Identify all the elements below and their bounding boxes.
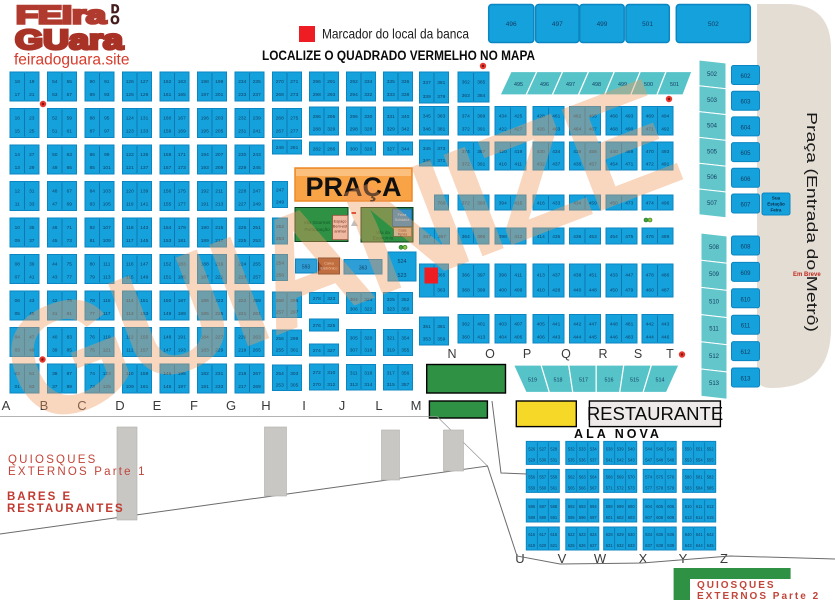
svg-text:EXTERNOS Parte 1: EXTERNOS Parte 1: [8, 466, 147, 478]
svg-text:381: 381: [437, 80, 445, 86]
svg-text:46: 46: [52, 225, 58, 231]
svg-text:L: L: [375, 398, 382, 413]
svg-text:543: 543: [628, 457, 636, 462]
svg-text:519: 519: [528, 378, 537, 384]
svg-text:203: 203: [215, 116, 223, 122]
svg-text:448: 448: [589, 287, 597, 293]
svg-text:351: 351: [423, 324, 431, 330]
svg-text:125: 125: [126, 92, 134, 98]
svg-text:407: 407: [514, 322, 522, 328]
svg-text:460: 460: [646, 287, 654, 293]
svg-text:53: 53: [52, 92, 58, 98]
svg-text:17: 17: [15, 92, 21, 98]
svg-text:505: 505: [707, 149, 718, 155]
svg-text:296: 296: [313, 79, 321, 85]
svg-text:569: 569: [617, 474, 625, 479]
svg-text:579: 579: [667, 485, 675, 490]
svg-text:608: 608: [656, 515, 664, 520]
svg-text:537: 537: [590, 457, 598, 462]
svg-text:641: 641: [696, 532, 704, 537]
svg-text:629: 629: [617, 532, 625, 537]
svg-text:495: 495: [514, 82, 523, 88]
svg-text:91: 91: [104, 79, 110, 85]
svg-text:494: 494: [661, 114, 669, 120]
svg-text:158: 158: [163, 152, 171, 158]
svg-text:612: 612: [740, 350, 751, 356]
svg-text:31: 31: [29, 189, 35, 195]
svg-text:Estação: Estação: [767, 202, 785, 207]
svg-text:573: 573: [628, 485, 636, 490]
svg-text:318: 318: [364, 347, 372, 353]
svg-text:48: 48: [52, 189, 58, 195]
svg-text:478: 478: [646, 273, 654, 279]
svg-text:487: 487: [661, 287, 669, 293]
svg-text:243: 243: [253, 152, 261, 158]
svg-text:450: 450: [610, 287, 618, 293]
svg-text:291: 291: [327, 79, 335, 85]
svg-text:592: 592: [568, 504, 576, 509]
svg-text:207: 207: [215, 152, 223, 158]
svg-text:585: 585: [707, 485, 715, 490]
svg-text:RESTAURANTE: RESTAURANTE: [587, 403, 723, 424]
svg-text:535: 535: [568, 457, 576, 462]
svg-text:622: 622: [568, 532, 576, 537]
svg-text:199: 199: [215, 79, 223, 85]
svg-text:437: 437: [552, 273, 560, 279]
svg-text:07: 07: [15, 275, 21, 281]
svg-text:328: 328: [364, 126, 372, 132]
svg-text:QUIOSQUES: QUIOSQUES: [697, 580, 776, 591]
svg-text:612: 612: [707, 504, 715, 509]
svg-text:254: 254: [276, 371, 284, 377]
svg-text:55: 55: [67, 79, 73, 85]
svg-text:131: 131: [140, 116, 148, 122]
svg-text:198: 198: [201, 79, 209, 85]
svg-text:Praça (Entrada do Metrô): Praça (Entrada do Metrô): [803, 112, 820, 332]
svg-text:644: 644: [696, 543, 704, 548]
svg-text:635: 635: [656, 532, 664, 537]
svg-text:171: 171: [178, 152, 186, 158]
svg-text:33: 33: [29, 202, 35, 208]
svg-text:600: 600: [628, 504, 636, 509]
svg-text:317: 317: [387, 371, 395, 377]
svg-text:296: 296: [350, 114, 358, 120]
svg-text:45: 45: [52, 238, 58, 244]
svg-text:59: 59: [67, 116, 73, 122]
svg-text:R: R: [598, 347, 607, 361]
svg-text:599: 599: [617, 504, 625, 509]
svg-text:25: 25: [29, 129, 35, 135]
svg-text:193: 193: [201, 165, 209, 171]
svg-text:90: 90: [90, 79, 96, 85]
svg-text:307: 307: [350, 347, 358, 353]
svg-text:Feira: Feira: [771, 208, 782, 213]
svg-text:551: 551: [696, 446, 704, 451]
svg-text:609: 609: [740, 271, 751, 277]
svg-text:562: 562: [568, 474, 576, 479]
svg-text:321: 321: [387, 336, 395, 342]
svg-text:518: 518: [554, 378, 563, 384]
svg-text:167: 167: [178, 116, 186, 122]
svg-text:205: 205: [215, 129, 223, 135]
svg-text:155: 155: [163, 202, 171, 208]
svg-text:267: 267: [276, 129, 284, 135]
svg-text:52: 52: [52, 116, 58, 122]
svg-text:486: 486: [661, 273, 669, 279]
svg-text:10: 10: [15, 225, 21, 231]
svg-text:303: 303: [290, 371, 298, 377]
svg-text:feiradoguara.site: feiradoguara.site: [14, 52, 129, 69]
svg-text:J: J: [339, 398, 346, 413]
svg-text:619: 619: [528, 543, 536, 548]
svg-text:27: 27: [29, 152, 35, 158]
svg-text:143: 143: [140, 225, 148, 231]
svg-text:U: U: [515, 551, 524, 566]
svg-text:360: 360: [462, 334, 470, 340]
svg-text:403: 403: [499, 322, 507, 328]
svg-text:580: 580: [685, 474, 693, 479]
svg-text:513: 513: [709, 381, 720, 387]
svg-text:511: 511: [709, 327, 719, 333]
svg-text:481: 481: [625, 322, 633, 328]
svg-text:615: 615: [707, 515, 715, 520]
svg-text:527: 527: [539, 446, 547, 451]
svg-text:594: 594: [590, 504, 598, 509]
svg-text:Q: Q: [561, 347, 571, 361]
svg-text:312: 312: [327, 382, 335, 388]
svg-text:601: 601: [606, 515, 614, 520]
svg-text:638: 638: [656, 543, 664, 548]
svg-text:161: 161: [163, 92, 171, 98]
svg-text:97: 97: [104, 129, 110, 135]
svg-text:314: 314: [364, 382, 372, 388]
svg-text:355: 355: [401, 347, 409, 353]
svg-text:605: 605: [656, 504, 664, 509]
svg-text:337: 337: [423, 80, 431, 86]
svg-text:606: 606: [740, 177, 751, 183]
svg-text:604: 604: [740, 125, 751, 131]
svg-text:14: 14: [15, 152, 21, 158]
svg-text:605: 605: [740, 151, 751, 157]
svg-text:273: 273: [290, 92, 298, 98]
svg-text:87: 87: [90, 129, 96, 135]
svg-text:129: 129: [140, 92, 148, 98]
svg-text:313: 313: [350, 382, 358, 388]
svg-text:103: 103: [103, 189, 111, 195]
svg-text:293: 293: [327, 92, 335, 98]
svg-text:195: 195: [201, 129, 209, 135]
svg-text:501: 501: [670, 82, 679, 88]
svg-text:09: 09: [15, 238, 21, 244]
svg-text:316: 316: [364, 371, 372, 377]
svg-text:305: 305: [290, 383, 298, 389]
svg-text:640: 640: [685, 532, 693, 537]
svg-text:29: 29: [29, 165, 35, 171]
svg-text:550: 550: [685, 446, 693, 451]
svg-text:384: 384: [477, 93, 485, 99]
svg-text:234: 234: [238, 79, 246, 85]
svg-text:496: 496: [506, 21, 517, 28]
svg-text:627: 627: [590, 543, 598, 548]
svg-text:582: 582: [707, 474, 715, 479]
svg-text:88: 88: [90, 116, 96, 122]
svg-text:576: 576: [667, 474, 675, 479]
svg-text:354: 354: [401, 336, 409, 342]
svg-text:139: 139: [140, 189, 148, 195]
svg-text:514: 514: [656, 378, 665, 384]
svg-text:353: 353: [423, 336, 431, 342]
svg-text:294: 294: [350, 92, 358, 98]
svg-text:270: 270: [276, 79, 284, 85]
svg-text:607: 607: [645, 515, 653, 520]
svg-text:544: 544: [645, 446, 653, 451]
svg-text:483: 483: [625, 334, 633, 340]
svg-text:509: 509: [709, 272, 720, 278]
svg-text:137: 137: [140, 165, 148, 171]
svg-text:510: 510: [709, 299, 720, 305]
svg-text:512: 512: [709, 354, 720, 360]
svg-text:613: 613: [740, 377, 751, 383]
svg-text:121: 121: [126, 165, 134, 171]
svg-text:581: 581: [696, 474, 704, 479]
svg-text:271: 271: [290, 79, 298, 85]
svg-text:63: 63: [67, 152, 73, 158]
svg-text:620: 620: [539, 543, 547, 548]
svg-text:233: 233: [238, 92, 246, 98]
svg-text:89: 89: [90, 92, 96, 98]
svg-text:G: G: [226, 398, 236, 413]
svg-text:433: 433: [610, 273, 618, 279]
svg-text:597: 597: [590, 515, 598, 520]
svg-text:563: 563: [579, 474, 587, 479]
svg-text:269: 269: [276, 92, 284, 98]
svg-text:339: 339: [423, 94, 431, 100]
svg-text:356: 356: [401, 371, 409, 377]
svg-text:35: 35: [29, 225, 35, 231]
svg-text:277: 277: [290, 129, 298, 135]
svg-text:71: 71: [67, 225, 73, 231]
svg-text:607: 607: [740, 203, 751, 209]
svg-text:Em Breve: Em Breve: [793, 272, 821, 278]
svg-text:159: 159: [163, 129, 171, 135]
svg-text:588: 588: [550, 504, 558, 509]
svg-text:628: 628: [606, 532, 614, 537]
svg-text:334: 334: [364, 79, 372, 85]
svg-text:127: 127: [140, 79, 148, 85]
svg-text:508: 508: [709, 245, 720, 251]
svg-text:553: 553: [685, 457, 693, 462]
svg-text:310: 310: [327, 370, 335, 376]
svg-text:401: 401: [477, 322, 485, 328]
svg-text:405: 405: [537, 322, 545, 328]
svg-text:ALA NOVA: ALA NOVA: [574, 427, 662, 441]
svg-text:11: 11: [15, 202, 20, 208]
svg-text:608: 608: [740, 245, 751, 251]
svg-text:281: 281: [290, 145, 298, 151]
svg-text:515: 515: [630, 378, 639, 384]
svg-text:558: 558: [550, 474, 558, 479]
svg-text:603: 603: [740, 100, 751, 106]
svg-text:621: 621: [550, 543, 558, 548]
svg-text:67: 67: [67, 189, 73, 195]
svg-text:13: 13: [15, 165, 21, 171]
svg-text:479: 479: [625, 287, 633, 293]
svg-text:538: 538: [606, 446, 614, 451]
svg-text:534: 534: [590, 446, 598, 451]
svg-text:385: 385: [477, 80, 485, 86]
svg-text:232: 232: [238, 116, 246, 122]
svg-text:Sua: Sua: [772, 196, 781, 201]
svg-text:634: 634: [645, 532, 653, 537]
svg-text:275: 275: [290, 116, 298, 122]
svg-text:595: 595: [568, 515, 576, 520]
svg-text:253: 253: [276, 383, 284, 389]
svg-text:338: 338: [401, 92, 409, 98]
svg-text:99: 99: [104, 152, 110, 158]
svg-text:596: 596: [579, 515, 587, 520]
svg-text:642: 642: [707, 532, 715, 537]
svg-text:624: 624: [590, 532, 598, 537]
svg-text:529: 529: [528, 457, 536, 462]
svg-text:438: 438: [573, 273, 581, 279]
svg-text:230: 230: [238, 152, 246, 158]
svg-text:626: 626: [579, 543, 587, 548]
svg-text:292: 292: [350, 79, 358, 85]
svg-text:611: 611: [741, 324, 751, 330]
svg-text:502: 502: [708, 21, 719, 28]
svg-text:448: 448: [610, 322, 618, 328]
svg-text:630: 630: [628, 532, 636, 537]
svg-text:57: 57: [67, 92, 73, 98]
svg-text:442: 442: [573, 322, 581, 328]
svg-text:M: M: [411, 398, 422, 413]
svg-text:51: 51: [52, 129, 58, 135]
svg-text:584: 584: [696, 485, 704, 490]
svg-text:560: 560: [539, 485, 547, 490]
svg-text:583: 583: [685, 485, 693, 490]
svg-text:332: 332: [364, 92, 372, 98]
svg-text:570: 570: [628, 474, 636, 479]
svg-text:575: 575: [656, 474, 664, 479]
svg-text:530: 530: [539, 457, 547, 462]
svg-text:S: S: [634, 347, 642, 361]
svg-text:445: 445: [589, 334, 597, 340]
svg-text:39: 39: [29, 262, 35, 268]
svg-text:556: 556: [528, 474, 536, 479]
svg-text:85: 85: [90, 165, 96, 171]
svg-text:331: 331: [387, 114, 395, 120]
svg-text:333: 333: [387, 92, 395, 98]
svg-text:GUara: GUara: [15, 24, 124, 55]
svg-text:295: 295: [327, 114, 335, 120]
svg-text:610: 610: [740, 297, 751, 303]
svg-text:120: 120: [126, 189, 134, 195]
svg-text:637: 637: [645, 543, 653, 548]
svg-text:531: 531: [550, 457, 558, 462]
svg-text:Marcador do local da banca: Marcador do local da banca: [322, 26, 469, 42]
svg-text:160: 160: [163, 116, 171, 122]
svg-text:X: X: [639, 551, 648, 566]
svg-text:357: 357: [401, 382, 409, 388]
svg-text:EXTERNOS Parte 2: EXTERNOS Parte 2: [697, 591, 820, 600]
svg-text:613: 613: [685, 515, 693, 520]
svg-text:T: T: [666, 347, 674, 361]
svg-text:603: 603: [628, 515, 636, 520]
svg-text:400: 400: [499, 287, 507, 293]
svg-text:311: 311: [350, 371, 358, 377]
svg-text:631: 631: [606, 543, 614, 548]
svg-text:442: 442: [646, 322, 654, 328]
svg-text:54: 54: [52, 79, 58, 85]
svg-text:N: N: [447, 347, 456, 361]
svg-text:16: 16: [15, 116, 21, 122]
svg-text:363: 363: [462, 93, 470, 99]
svg-text:528: 528: [550, 446, 558, 451]
svg-text:231: 231: [238, 129, 246, 135]
svg-text:606: 606: [667, 504, 675, 509]
svg-text:123: 123: [126, 129, 134, 135]
svg-text:135: 135: [140, 152, 148, 158]
svg-text:568: 568: [606, 474, 614, 479]
svg-text:228: 228: [238, 189, 246, 195]
svg-text:270: 270: [313, 382, 321, 388]
svg-text:169: 169: [178, 129, 186, 135]
svg-text:517: 517: [579, 378, 588, 384]
svg-text:444: 444: [573, 334, 581, 340]
svg-text:81: 81: [90, 238, 96, 244]
svg-text:165: 165: [178, 92, 186, 98]
svg-text:610: 610: [685, 504, 693, 509]
svg-text:211: 211: [215, 189, 223, 195]
svg-text:541: 541: [606, 457, 614, 462]
svg-text:643: 643: [685, 543, 693, 548]
svg-text:122: 122: [126, 152, 134, 158]
svg-text:118: 118: [126, 225, 134, 231]
svg-text:625: 625: [568, 543, 576, 548]
svg-text:559: 559: [528, 485, 536, 490]
svg-text:235: 235: [253, 79, 261, 85]
svg-text:157: 157: [163, 165, 171, 171]
svg-text:83: 83: [90, 202, 96, 208]
svg-text:446: 446: [661, 334, 669, 340]
svg-text:587: 587: [539, 504, 547, 509]
svg-text:413: 413: [477, 334, 485, 340]
svg-text:446: 446: [610, 334, 618, 340]
svg-text:574: 574: [645, 474, 653, 479]
svg-text:504: 504: [707, 124, 718, 130]
svg-text:362: 362: [462, 322, 470, 328]
svg-text:RESTAURANTES: RESTAURANTES: [7, 503, 125, 515]
svg-text:516: 516: [605, 378, 614, 384]
svg-text:335: 335: [387, 79, 395, 85]
svg-text:639: 639: [667, 543, 675, 548]
svg-text:12: 12: [15, 189, 21, 195]
svg-text:447: 447: [589, 322, 597, 328]
svg-text:636: 636: [667, 532, 675, 537]
svg-text:440: 440: [573, 287, 581, 293]
svg-text:37: 37: [29, 238, 35, 244]
svg-text:362: 362: [462, 80, 470, 86]
svg-text:282: 282: [313, 146, 321, 152]
svg-text:249: 249: [276, 145, 284, 151]
svg-text:413: 413: [537, 273, 545, 279]
svg-text:65: 65: [67, 165, 73, 171]
svg-text:286: 286: [313, 114, 321, 120]
svg-text:95: 95: [104, 116, 110, 122]
svg-text:319: 319: [387, 347, 395, 353]
svg-text:126: 126: [126, 79, 134, 85]
svg-text:84: 84: [90, 189, 96, 195]
